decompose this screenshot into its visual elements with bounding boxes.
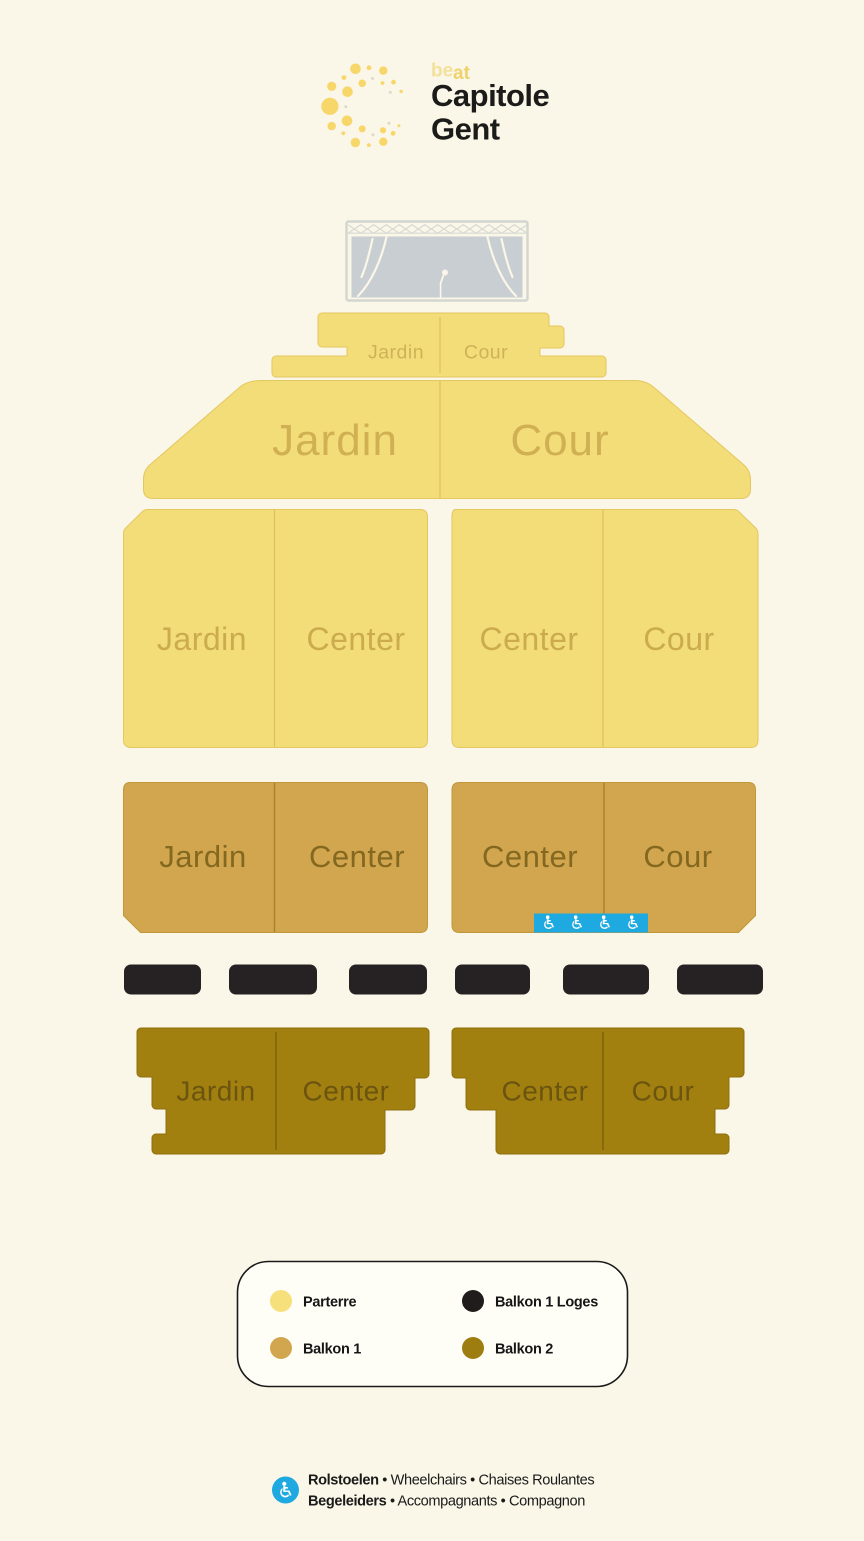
- svg-text:Center: Center: [309, 839, 405, 874]
- svg-text:Jardin: Jardin: [272, 416, 398, 465]
- svg-text:Jardin: Jardin: [368, 342, 424, 364]
- svg-text:Balkon 2: Balkon 2: [495, 1342, 553, 1358]
- svg-text:Center: Center: [501, 1076, 588, 1107]
- svg-text:Jardin: Jardin: [159, 839, 246, 874]
- svg-text:Jardin: Jardin: [176, 1076, 255, 1107]
- svg-text:Parterre: Parterre: [303, 1295, 356, 1311]
- svg-text:Center: Center: [479, 621, 578, 657]
- svg-text:Cour: Cour: [643, 839, 712, 874]
- svg-text:Jardin: Jardin: [157, 621, 247, 657]
- svg-text:Begeleiders • Accompagnants •: Begeleiders • Accompagnants • Compagnon: [308, 1494, 585, 1510]
- svg-text:Gent: Gent: [431, 112, 500, 147]
- svg-text:Capitole: Capitole: [431, 78, 550, 113]
- svg-text:Center: Center: [482, 839, 578, 874]
- svg-text:Balkon 1: Balkon 1: [303, 1342, 361, 1358]
- svg-text:Cour: Cour: [464, 342, 508, 364]
- svg-text:Cour: Cour: [510, 416, 609, 465]
- svg-text:Balkon 1 Loges: Balkon 1 Loges: [495, 1295, 598, 1311]
- svg-text:Rolstoelen • Wheelchairs • Cha: Rolstoelen • Wheelchairs • Chaises Roula…: [308, 1473, 594, 1489]
- svg-text:Center: Center: [302, 1076, 389, 1107]
- svg-text:Cour: Cour: [643, 621, 714, 657]
- svg-text:Cour: Cour: [632, 1076, 695, 1107]
- svg-text:Center: Center: [306, 621, 405, 657]
